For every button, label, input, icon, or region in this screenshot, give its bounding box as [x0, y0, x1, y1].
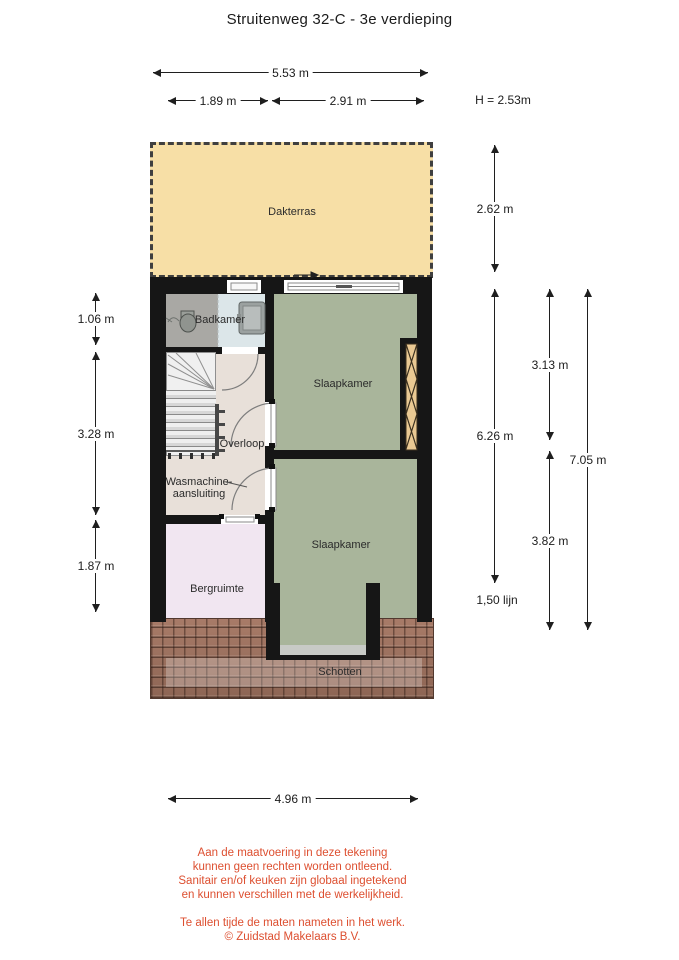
- door-arc-slaapkamer-2: [232, 468, 274, 510]
- dimension-label: 6.26 m: [473, 429, 518, 443]
- shower-tray-inner: [243, 306, 261, 330]
- dimension-right-bed2: 3.82 m: [549, 451, 550, 630]
- dimension-label: 3.28 m: [74, 427, 119, 441]
- room-label-slaapkamer-2: Slaapkamer: [312, 539, 371, 551]
- dimension-left-top: 1.06 m: [95, 293, 96, 345]
- loft-ladder-icon: [406, 344, 417, 450]
- dimension-left-bottom: 1.87 m: [95, 520, 96, 612]
- room-label-overloop: Overloop: [220, 438, 265, 450]
- door-arc-badkamer: [222, 354, 258, 390]
- door-leaves: [226, 403, 276, 522]
- wasmachine-line-1: Wasmachine-: [166, 476, 233, 488]
- disclaimer-line: Te allen tijde de maten nameten in het w…: [150, 916, 435, 930]
- window-details: [231, 272, 399, 290]
- disclaimer-copyright: © Zuidstad Makelaars B.V.: [150, 930, 435, 944]
- dimension-right-total: 7.05 m: [587, 289, 588, 630]
- wasmachine-line-2: aansluiting: [166, 488, 233, 500]
- disclaimer-line: Sanitair en/of keuken zijn globaal inget…: [150, 874, 435, 888]
- door-leaf-bergruimte: [226, 517, 254, 522]
- room-label-bergruimte: Bergruimte: [190, 583, 244, 595]
- dimension-right-bed1: 3.13 m: [549, 289, 550, 440]
- sliding-direction-arrow-icon: [294, 272, 318, 278]
- line-height-note: 1,50 lijn: [473, 593, 520, 607]
- dimension-label: 1.06 m: [74, 312, 119, 326]
- room-label-badkamer: Badkamer: [195, 314, 245, 326]
- door-hinge-blocks: [219, 399, 275, 519]
- toilet-bowl-icon: [180, 314, 196, 332]
- floorplan-page: Struitenweg 32-C - 3e verdieping 5.53 m …: [0, 0, 679, 960]
- dimension-label: 1.87 m: [74, 559, 119, 573]
- dimension-right-terrace: 2.62 m: [494, 145, 495, 272]
- sink-icon: [166, 318, 179, 322]
- disclaimer-gap: [150, 902, 435, 916]
- window-badkamer-frame: [231, 283, 257, 290]
- dimension-label: 3.82 m: [528, 534, 573, 548]
- plan-detail-overlay: [0, 0, 679, 960]
- disclaimer-text: Aan de maatvoering in deze tekening kunn…: [150, 846, 435, 944]
- disclaimer-line: Aan de maatvoering in deze tekening: [150, 846, 435, 860]
- dimension-label: 2.62 m: [473, 202, 518, 216]
- room-label-slaapkamer-1: Slaapkamer: [314, 378, 373, 390]
- dimension-label: 3.13 m: [528, 358, 573, 372]
- disclaimer-line: en kunnen verschillen met de werkelijkhe…: [150, 888, 435, 902]
- stair-winder-treads: [168, 353, 214, 389]
- dimension-bottom-width: 4.96 m: [168, 798, 418, 799]
- dimension-right-interior: 6.26 m: [494, 289, 495, 583]
- door-leaf-slaapkamer-1: [271, 403, 276, 446]
- dimension-left-middle: 3.28 m: [95, 352, 96, 515]
- room-label-wasmachine: Wasmachine- aansluiting: [166, 476, 233, 500]
- dimension-label: 7.05 m: [566, 453, 611, 467]
- dimension-label: 4.96 m: [271, 792, 316, 806]
- room-label-schotten: Schotten: [318, 666, 361, 678]
- disclaimer-line: kunnen geen rechten worden ontleend.: [150, 860, 435, 874]
- door-leaf-slaapkamer-2: [271, 468, 276, 510]
